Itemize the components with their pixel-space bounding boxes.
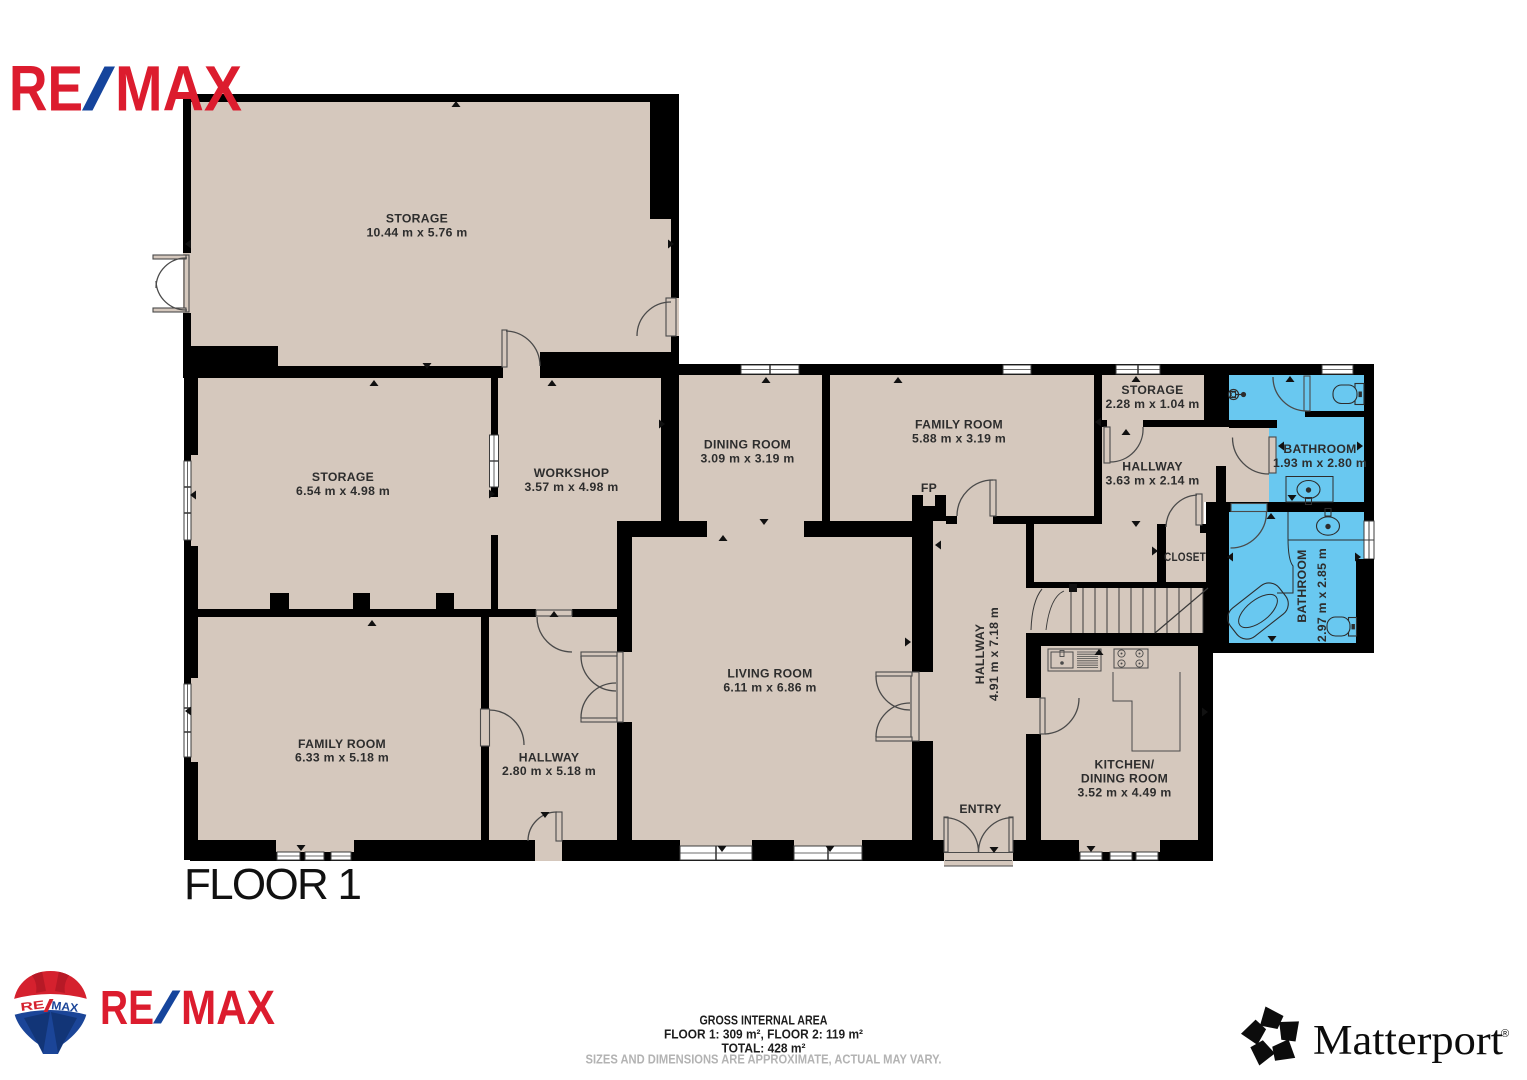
svg-text:STORAGE: STORAGE — [386, 212, 448, 226]
svg-text:FLOOR 1: FLOOR 1 — [184, 860, 362, 909]
svg-text:2.28 m x 1.04 m: 2.28 m x 1.04 m — [1106, 397, 1200, 411]
svg-text:3.09 m x 3.19 m: 3.09 m x 3.19 m — [701, 452, 795, 466]
svg-text:2.80 m x 5.18 m: 2.80 m x 5.18 m — [502, 764, 596, 778]
svg-text:6.54 m x 4.98 m: 6.54 m x 4.98 m — [296, 484, 390, 498]
svg-text:5.88 m x 3.19 m: 5.88 m x 3.19 m — [912, 432, 1006, 446]
svg-text:RE: RE — [100, 981, 154, 1035]
svg-text:HALLWAY: HALLWAY — [1122, 460, 1183, 474]
svg-text:4.91 m x 7.18 m: 4.91 m x 7.18 m — [987, 607, 1001, 701]
svg-text:DINING ROOM: DINING ROOM — [704, 438, 791, 452]
svg-text:1.93 m x 2.80 m: 1.93 m x 2.80 m — [1273, 456, 1367, 470]
svg-text:RE: RE — [9, 53, 83, 125]
svg-text:STORAGE: STORAGE — [1121, 383, 1183, 397]
svg-text:BATHROOM: BATHROOM — [1295, 549, 1309, 622]
svg-text:3.57 m x 4.98 m: 3.57 m x 4.98 m — [525, 480, 619, 494]
svg-text:FP: FP — [921, 481, 937, 495]
svg-text:BATHROOM: BATHROOM — [1283, 442, 1356, 456]
svg-text:ENTRY: ENTRY — [959, 802, 1001, 816]
svg-text:GROSS INTERNAL AREA: GROSS INTERNAL AREA — [700, 1013, 828, 1028]
svg-text:HALLWAY: HALLWAY — [519, 751, 580, 765]
svg-text:CLOSET: CLOSET — [1164, 550, 1206, 564]
svg-text:6.33 m x 5.18 m: 6.33 m x 5.18 m — [295, 751, 389, 765]
svg-text:WORKSHOP: WORKSHOP — [534, 466, 610, 480]
svg-text:DINING ROOM: DINING ROOM — [1081, 772, 1168, 786]
svg-text:®: ® — [1501, 1028, 1509, 1040]
svg-text:FAMILY ROOM: FAMILY ROOM — [915, 418, 1003, 432]
svg-text:STORAGE: STORAGE — [312, 470, 374, 484]
svg-text:3.52 m x 4.49 m: 3.52 m x 4.49 m — [1078, 786, 1172, 800]
svg-text:MAX: MAX — [181, 981, 275, 1035]
svg-text:Matterport: Matterport — [1313, 1018, 1503, 1064]
svg-text:FLOOR 1: 309 m², FLOOR 2: 119: FLOOR 1: 309 m², FLOOR 2: 119 m² — [664, 1027, 864, 1042]
svg-text:3.63 m x 2.14 m: 3.63 m x 2.14 m — [1106, 474, 1200, 488]
svg-text:10.44 m x 5.76 m: 10.44 m x 5.76 m — [366, 226, 467, 240]
svg-text:HALLWAY: HALLWAY — [973, 624, 987, 685]
svg-text:LIVING ROOM: LIVING ROOM — [727, 667, 812, 681]
svg-text:2.97 m x 2.85 m: 2.97 m x 2.85 m — [1315, 548, 1329, 642]
svg-text:FAMILY ROOM: FAMILY ROOM — [298, 737, 386, 751]
svg-text:SIZES AND DIMENSIONS ARE APPRO: SIZES AND DIMENSIONS ARE APPROXIMATE, AC… — [586, 1051, 942, 1066]
svg-text:MAX: MAX — [115, 53, 242, 125]
svg-text:6.11 m x 6.86 m: 6.11 m x 6.86 m — [723, 681, 816, 695]
svg-text:KITCHEN/: KITCHEN/ — [1095, 758, 1155, 772]
